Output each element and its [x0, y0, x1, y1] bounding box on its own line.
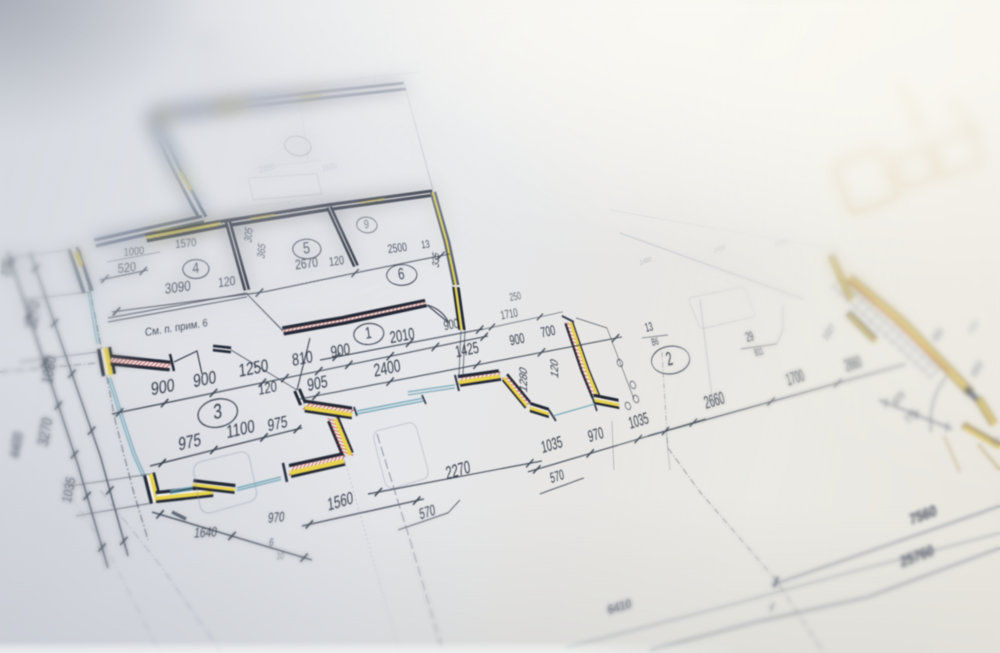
svg-text:1480: 1480	[639, 255, 653, 267]
svg-text:900: 900	[930, 326, 945, 344]
svg-text:25760: 25760	[899, 541, 936, 571]
svg-text:4000: 4000	[968, 358, 985, 379]
svg-text:6410: 6410	[607, 596, 633, 618]
svg-text:1000: 1000	[965, 318, 980, 337]
svg-text:2480: 2480	[713, 243, 727, 255]
svg-text:7560: 7560	[908, 501, 938, 528]
svg-text:1027: 1027	[820, 321, 837, 342]
